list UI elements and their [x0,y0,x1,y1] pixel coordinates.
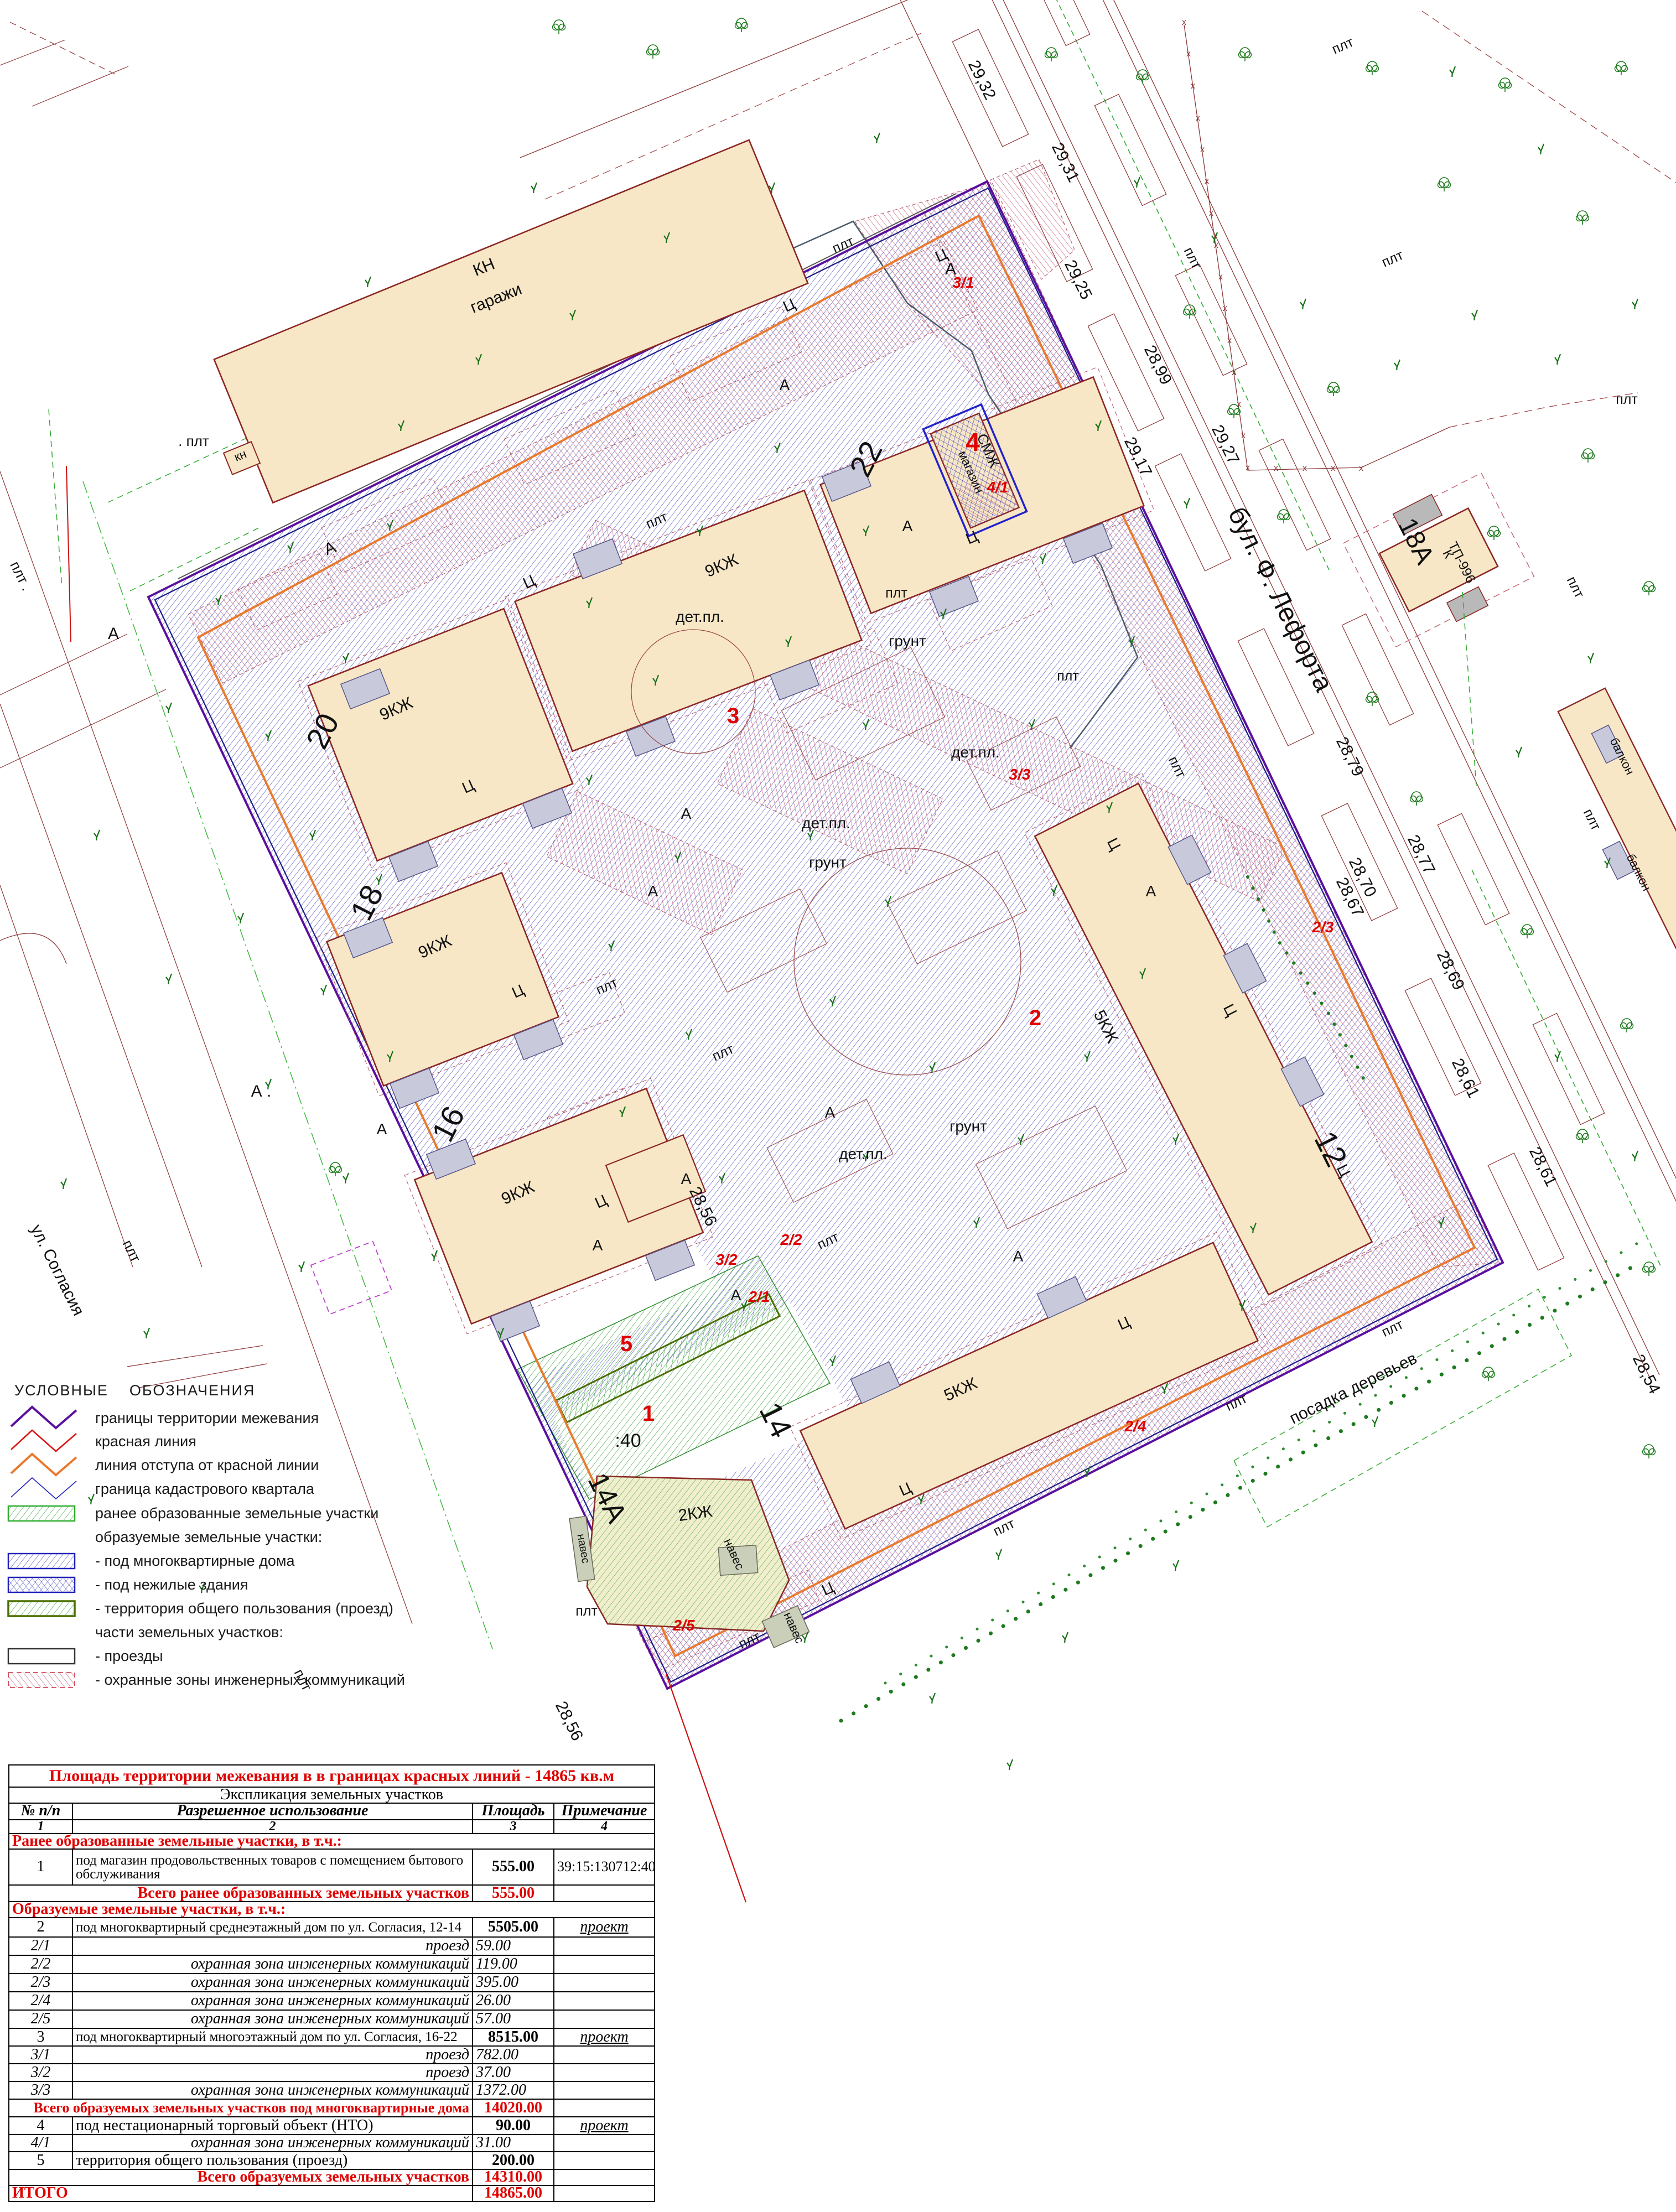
svg-text:грунт: грунт [809,854,847,871]
svg-text:дет.пл.: дет.пл. [839,1145,888,1162]
svg-text:2/2: 2/2 [780,1231,802,1248]
svg-text:А: А [1013,1248,1024,1265]
svg-text:грунт: грунт [889,632,926,650]
svg-text:3: 3 [727,704,739,728]
svg-text:А: А [648,882,658,900]
svg-text:x: x [1274,464,1278,473]
svg-text:части земельных участков:: части земельных участков: [95,1624,283,1640]
svg-text:x: x [1303,464,1307,473]
svg-text:x: x [1218,272,1223,282]
svg-text:линия отступа от красной линии: линия отступа от красной линии [95,1457,319,1473]
svg-text:красная линия: красная линия [95,1433,196,1450]
svg-text::40: :40 [615,1430,641,1451]
svg-text:- под нежилые здания: - под нежилые здания [95,1576,248,1593]
svg-text:2/3: 2/3 [1312,918,1334,936]
svg-text:грунт: грунт [949,1118,987,1135]
svg-text:x: x [1232,368,1236,377]
svg-text:2: 2 [1029,1006,1041,1030]
svg-text:- охранные зоны инженерных ком: - охранные зоны инженерных коммуникаций [95,1671,405,1688]
svg-text:дет.пл.: дет.пл. [676,608,724,625]
svg-text:x: x [1186,49,1191,59]
svg-text:А: А [681,1170,692,1187]
svg-text:А: А [902,517,913,534]
svg-text:А: А [108,625,119,643]
svg-text:x: x [1331,464,1335,473]
svg-text:А: А [731,1286,741,1304]
svg-text:ранее образованные земельные у: ранее образованные земельные участки [95,1505,378,1522]
svg-text:x: x [1200,145,1205,154]
svg-text:граница кадастрового квартала: граница кадастрового квартала [95,1481,315,1497]
svg-text:1: 1 [642,1401,655,1426]
svg-text:x: x [1359,464,1363,473]
svg-text:плт: плт [885,585,907,601]
svg-text:4: 4 [966,428,980,456]
svg-text:3/3: 3/3 [1009,766,1031,783]
svg-text:А: А [825,1104,836,1121]
svg-text:- под многоквартирные дома: - под многоквартирные дома [95,1552,295,1569]
svg-text:дет.пл.: дет.пл. [802,814,850,832]
svg-text:образуемые земельные участки:: образуемые земельные участки: [95,1529,322,1545]
svg-text:2/1: 2/1 [748,1288,770,1305]
svg-text:плт: плт [575,1603,598,1619]
svg-text:x: x [1246,463,1250,472]
svg-text:x: x [1209,209,1213,218]
svg-text:А: А [377,1120,387,1138]
svg-text:- проезды: - проезды [95,1648,163,1664]
svg-text:- территория общего пользовани: - территория общего пользования (проезд) [95,1600,393,1617]
svg-text:плт: плт [1616,392,1638,407]
svg-text:2/5: 2/5 [673,1617,695,1634]
svg-text:x: x [1191,81,1195,91]
svg-text:5: 5 [620,1332,632,1356]
svg-text:x: x [1182,18,1186,27]
svg-text:А: А [593,1237,603,1254]
svg-text:x: x [1227,336,1232,345]
svg-text:плт: плт [1057,668,1079,684]
svg-text:2/4: 2/4 [1124,1417,1146,1435]
svg-text:А: А [681,805,692,822]
svg-text:x: x [1205,176,1209,186]
svg-text:. плт: . плт [178,433,209,449]
svg-text:А: А [780,376,790,393]
svg-text:x: x [1223,304,1227,313]
svg-text:дет.пл.: дет.пл. [951,744,1000,761]
svg-text:УСЛОВНЫЕ ОБОЗНАЧЕНИЯ: УСЛОВНЫЕ ОБОЗНАЧЕНИЯ [14,1382,255,1399]
svg-text:А .: А . [251,1082,272,1100]
svg-text:3/2: 3/2 [716,1251,738,1268]
svg-text:границы территории межевания: границы территории межевания [95,1410,319,1426]
svg-text:x: x [1196,113,1200,123]
svg-text:x: x [1241,431,1246,440]
svg-text:4/1: 4/1 [987,479,1009,496]
svg-text:3/1: 3/1 [953,274,974,291]
svg-text:А: А [1146,882,1156,900]
